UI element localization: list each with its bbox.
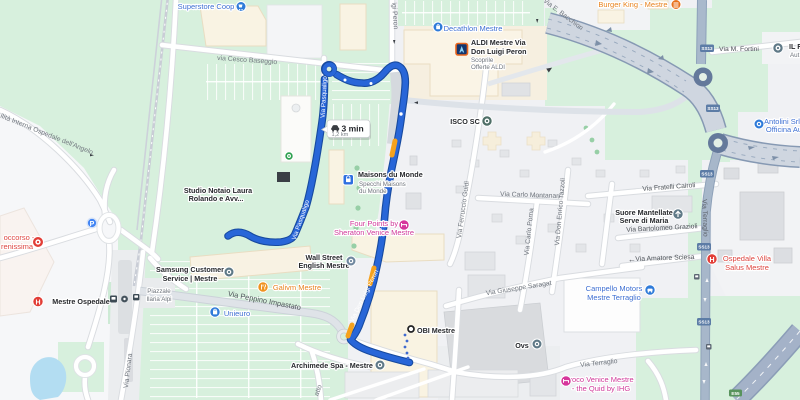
svg-text:ALDI Mestre Via: ALDI Mestre Via <box>471 38 527 47</box>
svg-text:- the Quid by IHG: - the Quid by IHG <box>572 384 631 393</box>
svg-text:Via M. Fortini: Via M. Fortini <box>719 46 759 53</box>
svg-text:Mestre Ospedale: Mestre Ospedale <box>52 297 110 306</box>
svg-text:Galivm Mestre: Galivm Mestre <box>273 283 321 292</box>
svg-text:Decathlon Mestre: Decathlon Mestre <box>444 24 503 33</box>
svg-text:Archimede Spa - Mestre: Archimede Spa - Mestre <box>291 361 373 370</box>
svg-text:Superstore Coop: Superstore Coop <box>178 2 235 11</box>
svg-text:Burger King - Mestre: Burger King - Mestre <box>598 0 667 9</box>
svg-text:SS13: SS13 <box>707 106 719 111</box>
svg-text:Ospedale Villa: Ospedale Villa <box>723 254 772 263</box>
svg-text:Ovs: Ovs <box>515 341 529 350</box>
svg-text:Via Terraglio: Via Terraglio <box>700 199 708 237</box>
svg-text:1,2 km: 1,2 km <box>332 132 349 138</box>
svg-text:H: H <box>35 300 40 307</box>
svg-text:Samsung Customer: Samsung Customer <box>156 265 224 274</box>
svg-text:SS13: SS13 <box>698 245 710 250</box>
svg-text:Offerte ALDI: Offerte ALDI <box>471 64 505 71</box>
svg-text:SS13: SS13 <box>701 172 713 177</box>
svg-text:Scoprile: Scoprile <box>471 57 494 64</box>
svg-text:Aut: Aut <box>790 52 800 59</box>
svg-text:SS13: SS13 <box>701 46 713 51</box>
svg-text:Campello Motors: Campello Motors <box>586 284 643 293</box>
svg-text:Unieuro: Unieuro <box>224 309 250 318</box>
svg-text:Officina Au: Officina Au <box>766 125 800 134</box>
svg-text:Specchi Maisons: Specchi Maisons <box>359 181 406 188</box>
svg-text:Don Luigi Peron: Don Luigi Peron <box>471 47 527 56</box>
svg-text:Salus Mestre: Salus Mestre <box>725 263 769 272</box>
svg-text:Four Points by: Four Points by <box>350 219 399 228</box>
svg-text:OBI Mestre: OBI Mestre <box>417 326 455 335</box>
svg-text:du Monde: du Monde <box>359 188 387 195</box>
svg-text:Service | Mestre: Service | Mestre <box>163 274 218 283</box>
svg-text:Rolando e Avv...: Rolando e Avv... <box>189 194 244 203</box>
svg-text:renissima: renissima <box>1 242 34 251</box>
svg-text:Maisons du Monde: Maisons du Monde <box>358 170 423 179</box>
svg-text:E55: E55 <box>731 391 740 396</box>
svg-text:Serve di Maria: Serve di Maria <box>620 216 670 225</box>
svg-text:ISCO SC: ISCO SC <box>450 117 480 126</box>
svg-text:Piazzale: Piazzale <box>147 288 171 295</box>
svg-text:IL FA: IL FA <box>789 42 800 51</box>
svg-text:English Mestre: English Mestre <box>298 261 349 270</box>
svg-text:←: ← <box>628 255 636 264</box>
svg-text:occorso -: occorso - <box>4 233 35 242</box>
svg-text:voco Venice Mestre: voco Venice Mestre <box>568 375 633 384</box>
svg-text:Mestre Terraglio: Mestre Terraglio <box>587 293 641 302</box>
svg-text:SS13: SS13 <box>698 320 710 325</box>
svg-text:P: P <box>90 221 95 228</box>
svg-text:H: H <box>709 257 714 264</box>
svg-text:Ilaria Alpi: Ilaria Alpi <box>146 296 171 303</box>
